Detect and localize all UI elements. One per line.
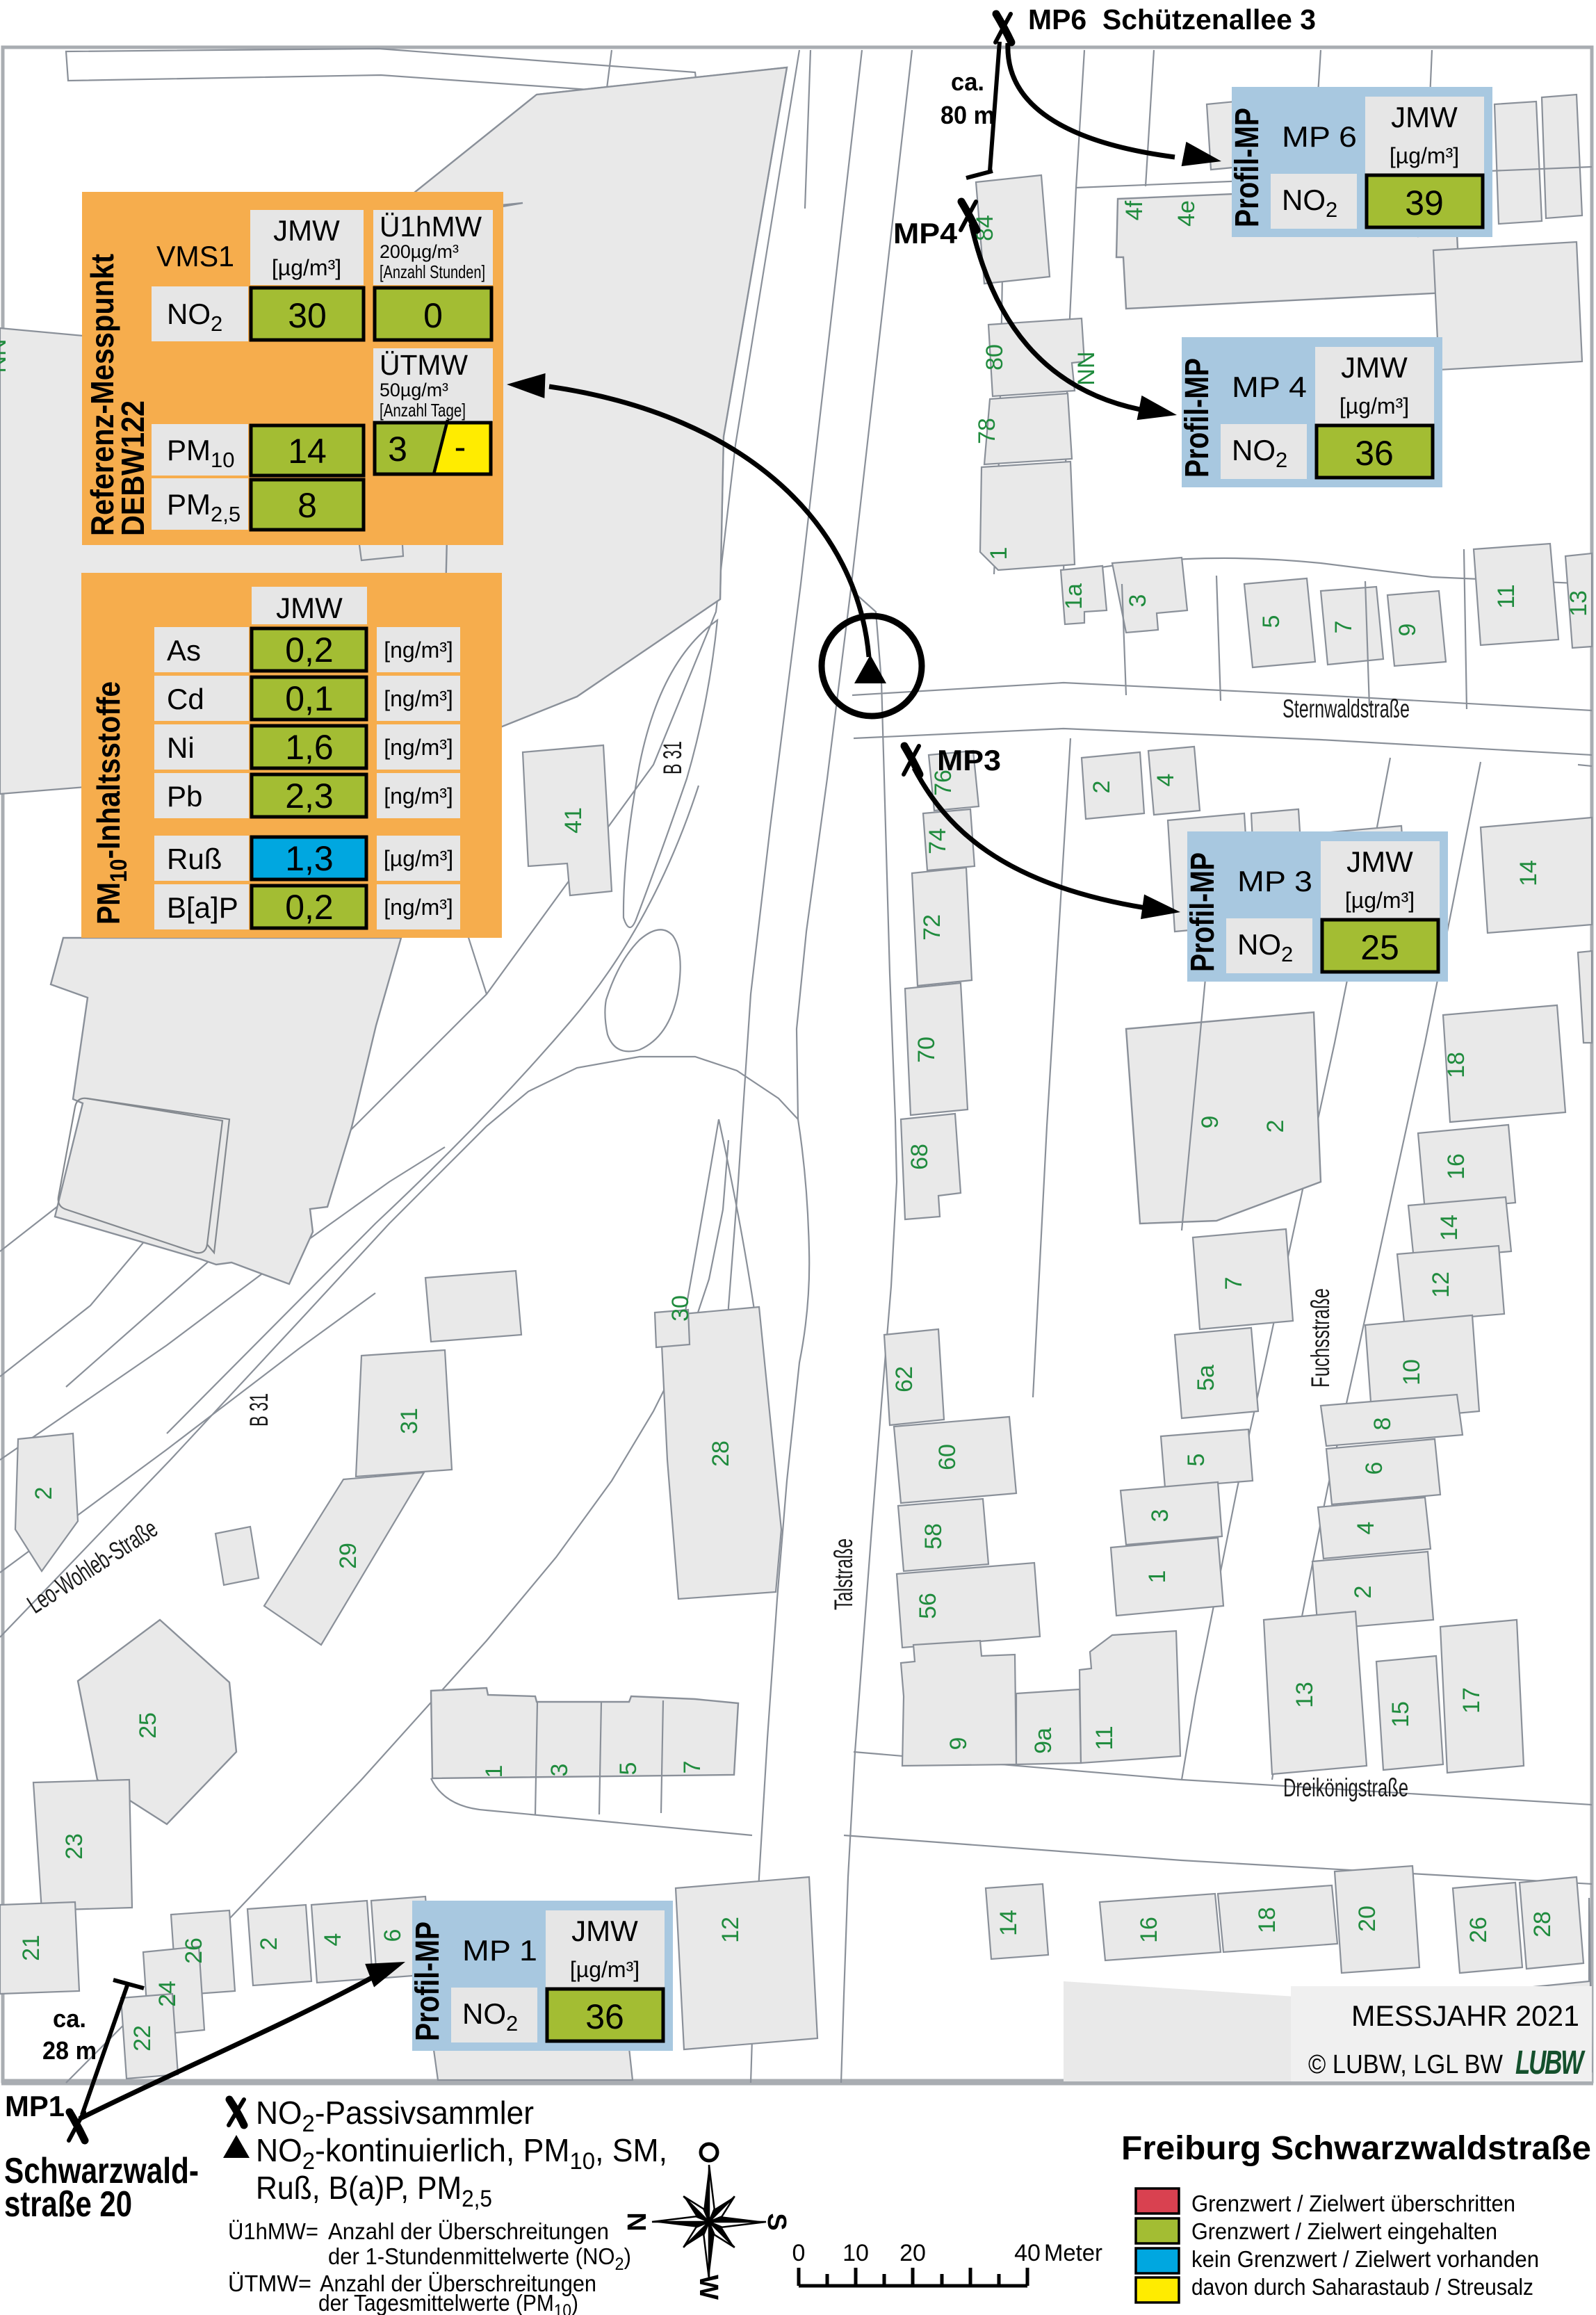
- svg-text:Profil-MP: Profil-MP: [1184, 852, 1221, 972]
- svg-text:VMS1: VMS1: [156, 240, 234, 273]
- svg-text:36: 36: [1355, 434, 1394, 473]
- svg-text:50µg/m³: 50µg/m³: [380, 380, 448, 400]
- svg-text:60: 60: [934, 1444, 961, 1470]
- svg-text:5a: 5a: [1193, 1365, 1219, 1391]
- svg-text:straße 20: straße 20: [4, 2184, 132, 2225]
- svg-text:6: 6: [380, 1929, 406, 1942]
- svg-text:[ng/m³]: [ng/m³]: [384, 895, 453, 920]
- svg-text:4e: 4e: [1173, 200, 1200, 227]
- svg-text:Sternwaldstraße: Sternwaldstraße: [1282, 694, 1410, 723]
- svg-text:0,2: 0,2: [285, 888, 334, 927]
- svg-text:3: 3: [1125, 594, 1151, 608]
- svg-text:18: 18: [1443, 1052, 1469, 1078]
- svg-text:© LUBW, LGL BW: © LUBW, LGL BW: [1308, 2050, 1503, 2079]
- svg-text:11: 11: [1091, 1725, 1118, 1750]
- svg-text:15: 15: [1387, 1701, 1414, 1728]
- svg-text:3: 3: [388, 430, 407, 469]
- svg-text:16: 16: [1136, 1917, 1162, 1943]
- svg-text:Ni: Ni: [167, 731, 195, 764]
- svg-text:LUBW: LUBW: [1515, 2045, 1586, 2081]
- svg-text:12: 12: [717, 1917, 744, 1943]
- svg-text:11: 11: [1493, 584, 1520, 608]
- svg-text:7: 7: [1221, 1277, 1247, 1290]
- svg-text:2: 2: [1350, 1586, 1376, 1599]
- svg-text:25: 25: [135, 1712, 161, 1739]
- svg-text:78: 78: [974, 418, 1000, 444]
- svg-text:0: 0: [423, 296, 443, 335]
- svg-text:Freiburg Schwarzwaldstraße: Freiburg Schwarzwaldstraße: [1121, 2130, 1591, 2167]
- svg-text:26: 26: [1465, 1917, 1492, 1943]
- svg-text:JMW: JMW: [276, 592, 343, 624]
- svg-text:ca.: ca.: [951, 67, 984, 96]
- svg-text:56: 56: [915, 1593, 941, 1619]
- svg-text:9: 9: [1394, 624, 1421, 637]
- svg-text:NO2-kontinuierlich, PM10, SM,: NO2-kontinuierlich, PM10, SM,: [256, 2132, 667, 2175]
- svg-text:9a: 9a: [1030, 1728, 1057, 1754]
- svg-text:0,1: 0,1: [285, 679, 334, 718]
- svg-text:[ng/m³]: [ng/m³]: [384, 783, 453, 809]
- svg-text:Talstraße: Talstraße: [829, 1538, 858, 1610]
- svg-text:Pb: Pb: [167, 780, 202, 813]
- svg-text:16: 16: [1443, 1153, 1469, 1180]
- svg-text:S: S: [762, 2213, 791, 2230]
- svg-text:29: 29: [335, 1543, 361, 1569]
- svg-text:12: 12: [1428, 1272, 1454, 1298]
- svg-text:70: 70: [913, 1037, 940, 1063]
- svg-text:B 31: B 31: [245, 1393, 273, 1427]
- svg-text:21: 21: [18, 1935, 44, 1961]
- svg-text:4: 4: [320, 1933, 346, 1947]
- svg-text:MP 1: MP 1: [462, 1934, 537, 1967]
- svg-text:10: 10: [1399, 1359, 1425, 1386]
- svg-text:ÜTMW: ÜTMW: [380, 349, 468, 381]
- svg-text:MP4: MP4: [893, 217, 958, 250]
- svg-text:5: 5: [1258, 615, 1285, 628]
- svg-text:1,6: 1,6: [285, 728, 334, 767]
- svg-text:Ü1hMW=: Ü1hMW=: [228, 2218, 318, 2244]
- svg-text:2: 2: [31, 1487, 57, 1500]
- svg-text:[µg/m³]: [µg/m³]: [1345, 888, 1415, 913]
- svg-text:18: 18: [1254, 1907, 1280, 1933]
- svg-text:1: 1: [1144, 1570, 1171, 1584]
- svg-text:3: 3: [546, 1764, 573, 1777]
- svg-text:1: 1: [481, 1765, 507, 1778]
- svg-text:24: 24: [154, 1981, 181, 2007]
- svg-text:MP 3: MP 3: [1237, 865, 1312, 897]
- svg-text:[µg/m³]: [µg/m³]: [1339, 393, 1409, 419]
- svg-text:0: 0: [792, 2240, 806, 2266]
- svg-text:17: 17: [1458, 1687, 1485, 1714]
- svg-text:JMW: JMW: [1346, 845, 1413, 878]
- svg-text:davon durch Saharastaub / Stre: davon durch Saharastaub / Streusalz: [1191, 2274, 1533, 2300]
- svg-text:Anzahl der Überschreitungen: Anzahl der Überschreitungen: [328, 2218, 609, 2244]
- svg-text:NN: NN: [1073, 351, 1100, 385]
- svg-text:80: 80: [982, 344, 1008, 371]
- svg-text:[µg/m³]: [µg/m³]: [272, 255, 341, 280]
- svg-text:B 31: B 31: [658, 741, 687, 774]
- svg-text:ÜTMW=: ÜTMW=: [228, 2271, 311, 2296]
- svg-text:8: 8: [1369, 1418, 1396, 1431]
- svg-text:200µg/m³: 200µg/m³: [380, 241, 459, 262]
- svg-text:9: 9: [1197, 1116, 1223, 1129]
- svg-text:7: 7: [679, 1761, 706, 1774]
- svg-text:PM10-Inhaltsstoffe: PM10-Inhaltsstoffe: [90, 681, 132, 925]
- svg-text:N: N: [623, 2212, 652, 2231]
- svg-text:9: 9: [945, 1737, 972, 1751]
- svg-text:[µg/m³]: [µg/m³]: [384, 846, 453, 871]
- svg-text:0,2: 0,2: [285, 631, 334, 669]
- svg-text:JMW: JMW: [1391, 101, 1458, 133]
- svg-text:MP3: MP3: [937, 744, 1001, 777]
- svg-text:23: 23: [61, 1833, 88, 1860]
- svg-text:4: 4: [1153, 774, 1179, 787]
- svg-text:28: 28: [1529, 1911, 1556, 1938]
- svg-text:MP 6: MP 6: [1282, 120, 1357, 153]
- svg-text:26: 26: [181, 1938, 207, 1964]
- svg-text:Fuchsstraße: Fuchsstraße: [1306, 1288, 1335, 1388]
- svg-text:1a: 1a: [1061, 583, 1087, 610]
- svg-text:[µg/m³]: [µg/m³]: [1390, 143, 1459, 168]
- svg-text:31: 31: [396, 1408, 423, 1434]
- svg-text:der Tagesmittelwerte (PM10): der Tagesmittelwerte (PM10): [318, 2290, 578, 2315]
- svg-text:7: 7: [1330, 621, 1357, 634]
- svg-text:MESSJAHR 2021: MESSJAHR 2021: [1351, 1999, 1579, 2032]
- svg-text:40: 40: [1014, 2240, 1041, 2266]
- svg-text:Ruß: Ruß: [167, 843, 222, 875]
- svg-text:2: 2: [1262, 1120, 1289, 1133]
- svg-text:MP1: MP1: [5, 2090, 65, 2122]
- svg-text:14: 14: [995, 1910, 1022, 1936]
- svg-text:NO2-Passivsammler: NO2-Passivsammler: [256, 2095, 534, 2137]
- svg-text:39: 39: [1405, 184, 1444, 222]
- svg-text:80 m: 80 m: [940, 101, 995, 129]
- svg-text:Profil-MP: Profil-MP: [1179, 358, 1216, 478]
- svg-text:1: 1: [986, 547, 1012, 560]
- svg-text:[ng/m³]: [ng/m³]: [384, 686, 453, 711]
- svg-text:Grenzwert / Zielwert eingehalt: Grenzwert / Zielwert eingehalten: [1191, 2218, 1497, 2244]
- svg-text:Grenzwert / Zielwert überschri: Grenzwert / Zielwert überschritten: [1191, 2191, 1515, 2216]
- svg-text:6: 6: [1361, 1462, 1387, 1475]
- svg-text:2: 2: [256, 1938, 282, 1951]
- svg-text:Dreikönigstraße: Dreikönigstraße: [1283, 1773, 1408, 1802]
- svg-text:22: 22: [129, 2025, 156, 2052]
- svg-text:68: 68: [906, 1144, 933, 1170]
- svg-text:MP6 Schützenallee 3: MP6 Schützenallee 3: [1028, 3, 1316, 35]
- svg-text:MP 4: MP 4: [1232, 371, 1307, 403]
- svg-text:[µg/m³]: [µg/m³]: [570, 1957, 640, 1982]
- svg-text:Profil-MP: Profil-MP: [409, 1922, 446, 2041]
- svg-text:4f: 4f: [1121, 200, 1148, 220]
- svg-text:Ü1hMW: Ü1hMW: [380, 211, 482, 243]
- svg-text:JMW: JMW: [1341, 351, 1408, 384]
- svg-text:[Anzahl Tage]: [Anzahl Tage]: [380, 400, 466, 421]
- svg-text:DEBW122: DEBW122: [115, 400, 151, 536]
- svg-text:ca.: ca.: [53, 2004, 86, 2033]
- svg-text:NN: NN: [0, 339, 11, 373]
- svg-text:62: 62: [891, 1366, 918, 1392]
- svg-text:3: 3: [1147, 1509, 1173, 1522]
- svg-text:28: 28: [708, 1440, 734, 1467]
- svg-text:41: 41: [560, 807, 587, 834]
- svg-text:14: 14: [1515, 860, 1542, 886]
- svg-text:JMW: JMW: [571, 1915, 638, 1947]
- svg-text:8: 8: [298, 486, 317, 525]
- svg-text:13: 13: [1565, 590, 1592, 617]
- svg-text:30: 30: [288, 296, 327, 335]
- svg-text:25: 25: [1360, 928, 1399, 967]
- svg-text:Meter: Meter: [1044, 2240, 1102, 2266]
- svg-text:14: 14: [1436, 1215, 1463, 1241]
- svg-text:28 m: 28 m: [42, 2036, 97, 2065]
- svg-text:Ruß, B(a)P, PM2,5: Ruß, B(a)P, PM2,5: [256, 2170, 492, 2212]
- svg-text:Profil-MP: Profil-MP: [1229, 108, 1266, 227]
- svg-text:20: 20: [1354, 1906, 1381, 1932]
- svg-text:10: 10: [842, 2240, 869, 2266]
- svg-text:1,3: 1,3: [285, 839, 334, 878]
- svg-text:As: As: [167, 634, 201, 667]
- svg-text:20: 20: [899, 2240, 926, 2266]
- svg-text:13: 13: [1292, 1682, 1318, 1708]
- svg-text:5: 5: [1183, 1454, 1210, 1467]
- svg-text:W: W: [694, 2275, 723, 2300]
- svg-text:58: 58: [920, 1523, 947, 1550]
- svg-text:4: 4: [1353, 1522, 1379, 1535]
- svg-text:[Anzahl Stunden]: [Anzahl Stunden]: [380, 261, 485, 282]
- svg-text:30: 30: [667, 1295, 694, 1322]
- svg-text:Cd: Cd: [167, 683, 204, 715]
- svg-text:2: 2: [1089, 781, 1115, 794]
- svg-text:JMW: JMW: [273, 214, 340, 247]
- svg-text:B[a]P: B[a]P: [167, 891, 238, 924]
- svg-text:14: 14: [288, 432, 327, 471]
- svg-text:kein Grenzwert / Zielwert vorh: kein Grenzwert / Zielwert vorhanden: [1191, 2246, 1539, 2272]
- svg-text:5: 5: [615, 1762, 642, 1776]
- svg-text:-: -: [455, 428, 466, 466]
- svg-text:[ng/m³]: [ng/m³]: [384, 735, 453, 760]
- svg-text:[ng/m³]: [ng/m³]: [384, 637, 453, 663]
- svg-text:36: 36: [585, 1997, 624, 2036]
- svg-text:2,3: 2,3: [285, 777, 334, 815]
- svg-text:74: 74: [925, 828, 951, 854]
- svg-text:72: 72: [919, 914, 945, 941]
